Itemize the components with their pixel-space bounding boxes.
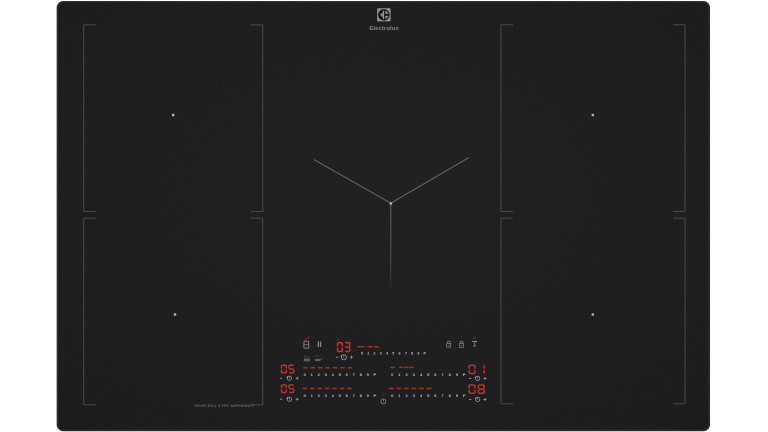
svg-text:8: 8: [411, 352, 413, 356]
svg-text:P: P: [373, 372, 376, 377]
svg-text:2: 2: [373, 352, 375, 356]
svg-text:P: P: [373, 393, 376, 398]
svg-text:6: 6: [399, 352, 401, 356]
svg-text:Electrolux: Electrolux: [369, 26, 399, 32]
svg-text:P: P: [463, 372, 466, 377]
svg-text:9: 9: [417, 352, 419, 356]
svg-text:SENSE BOIL & FRY SAPHIRMATT: SENSE BOIL & FRY SAPHIRMATT: [194, 404, 254, 408]
svg-text:3: 3: [380, 352, 382, 356]
svg-text:7: 7: [405, 352, 407, 356]
svg-text:1: 1: [367, 352, 369, 356]
svg-text:0: 0: [361, 352, 363, 356]
svg-text:P: P: [463, 393, 466, 398]
svg-text:5: 5: [392, 352, 394, 356]
